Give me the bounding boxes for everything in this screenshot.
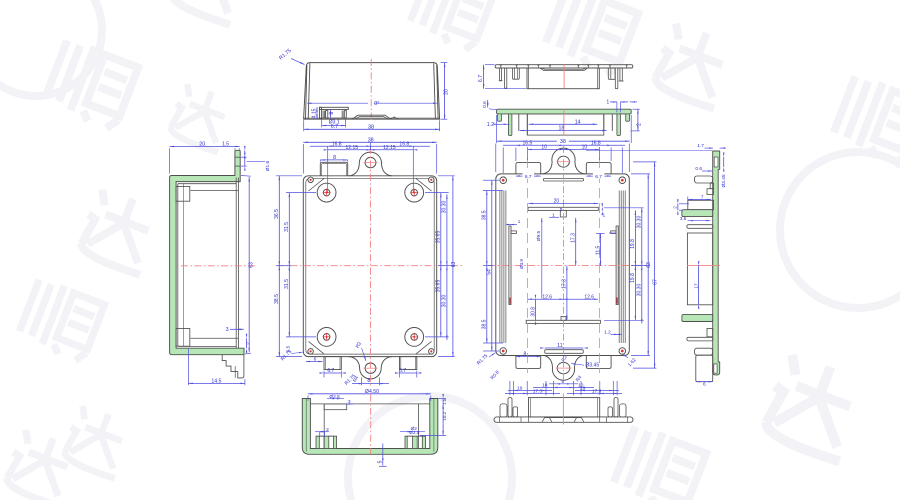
svg-text:1: 1	[518, 219, 521, 224]
svg-text:1: 1	[606, 100, 609, 106]
svg-text:16.5: 16.5	[523, 140, 533, 146]
svg-text:38.5: 38.5	[482, 319, 488, 329]
svg-text:1.5: 1.5	[222, 142, 229, 148]
svg-text:8: 8	[367, 378, 370, 384]
svg-text:35.65: 35.65	[436, 280, 442, 293]
svg-text:20: 20	[199, 142, 205, 148]
svg-text:3: 3	[226, 327, 229, 333]
svg-text:38: 38	[560, 139, 566, 145]
svg-text:7: 7	[701, 195, 704, 200]
svg-text:1.5: 1.5	[442, 398, 447, 405]
svg-text:12.15: 12.15	[346, 145, 359, 151]
svg-text:54: 54	[487, 269, 493, 275]
svg-text:1: 1	[602, 212, 605, 218]
svg-text:5: 5	[378, 460, 384, 463]
svg-text:Ø3.45: Ø3.45	[586, 362, 600, 368]
svg-text:12.6: 12.6	[542, 294, 552, 300]
svg-text:35.65: 35.65	[436, 231, 442, 244]
svg-text:17.3: 17.3	[562, 279, 568, 289]
svg-text:16.8: 16.8	[399, 141, 409, 147]
svg-text:31.5: 31.5	[284, 222, 290, 232]
svg-text:1.2: 1.2	[487, 122, 494, 128]
svg-text:16.8: 16.8	[332, 141, 342, 147]
svg-text:20: 20	[554, 199, 560, 205]
svg-text:1.7: 1.7	[697, 143, 704, 149]
svg-text:10.2: 10.2	[442, 411, 447, 420]
svg-text:1.2: 1.2	[604, 330, 611, 336]
svg-text:2: 2	[245, 342, 251, 345]
svg-text:6.7: 6.7	[525, 174, 532, 180]
svg-text:38.5: 38.5	[274, 294, 280, 304]
svg-text:Ø3.45: Ø3.45	[721, 174, 727, 187]
svg-text:30.8: 30.8	[530, 307, 536, 317]
svg-text:6: 6	[703, 382, 706, 388]
svg-text:8: 8	[333, 155, 336, 161]
svg-text:31.5: 31.5	[284, 279, 290, 289]
svg-text:Ø9.5: Ø9.5	[536, 230, 542, 241]
svg-text:30.30: 30.30	[442, 295, 448, 308]
svg-text:3.5: 3.5	[680, 216, 687, 221]
svg-text:16.8: 16.8	[591, 140, 601, 146]
svg-text:5.5: 5.5	[286, 345, 291, 352]
svg-text:12.15: 12.15	[383, 145, 396, 151]
svg-text:67: 67	[652, 279, 658, 285]
svg-text:30.30: 30.30	[637, 284, 643, 297]
svg-text:17.3: 17.3	[571, 233, 577, 243]
svg-text:8: 8	[524, 351, 527, 357]
svg-text:63: 63	[248, 262, 254, 268]
svg-text:19.8: 19.8	[630, 273, 636, 283]
svg-text:14.5: 14.5	[211, 379, 221, 385]
svg-text:6.7: 6.7	[399, 368, 406, 374]
svg-text:36.5: 36.5	[274, 209, 280, 219]
svg-text:11: 11	[557, 343, 562, 349]
svg-text:3: 3	[329, 112, 335, 115]
svg-text:Ø4.50: Ø4.50	[365, 389, 379, 395]
svg-text:14: 14	[575, 120, 581, 126]
svg-text:10: 10	[582, 145, 588, 151]
svg-text:6.7: 6.7	[327, 368, 334, 374]
svg-text:0°: 0°	[374, 101, 379, 107]
svg-text:63: 63	[451, 262, 457, 268]
svg-text:20: 20	[444, 89, 450, 95]
svg-text:0.6: 0.6	[482, 101, 488, 108]
svg-text:Ø1.6: Ø1.6	[265, 160, 271, 171]
svg-text:Ø2.5: Ø2.5	[409, 430, 420, 435]
svg-text:19.8: 19.8	[630, 239, 636, 249]
svg-text:38: 38	[368, 124, 374, 130]
svg-text:63: 63	[646, 262, 652, 268]
svg-text:11.5: 11.5	[595, 246, 601, 256]
svg-text:4.15: 4.15	[311, 108, 317, 118]
svg-text:17: 17	[693, 283, 698, 289]
svg-text:30.30: 30.30	[442, 201, 448, 214]
svg-text:38.5: 38.5	[482, 210, 488, 220]
svg-text:12.6: 12.6	[584, 294, 594, 300]
svg-text:6.7: 6.7	[595, 174, 602, 180]
svg-text:10: 10	[541, 145, 547, 151]
svg-text:0.6: 0.6	[695, 166, 702, 172]
svg-text:18: 18	[559, 126, 565, 132]
svg-text:6.7: 6.7	[478, 75, 484, 82]
svg-text:Ø3.1: Ø3.1	[329, 119, 340, 125]
svg-text:2: 2	[636, 123, 642, 126]
svg-text:30.30: 30.30	[637, 216, 643, 229]
svg-text:Ø3.9: Ø3.9	[519, 259, 524, 269]
